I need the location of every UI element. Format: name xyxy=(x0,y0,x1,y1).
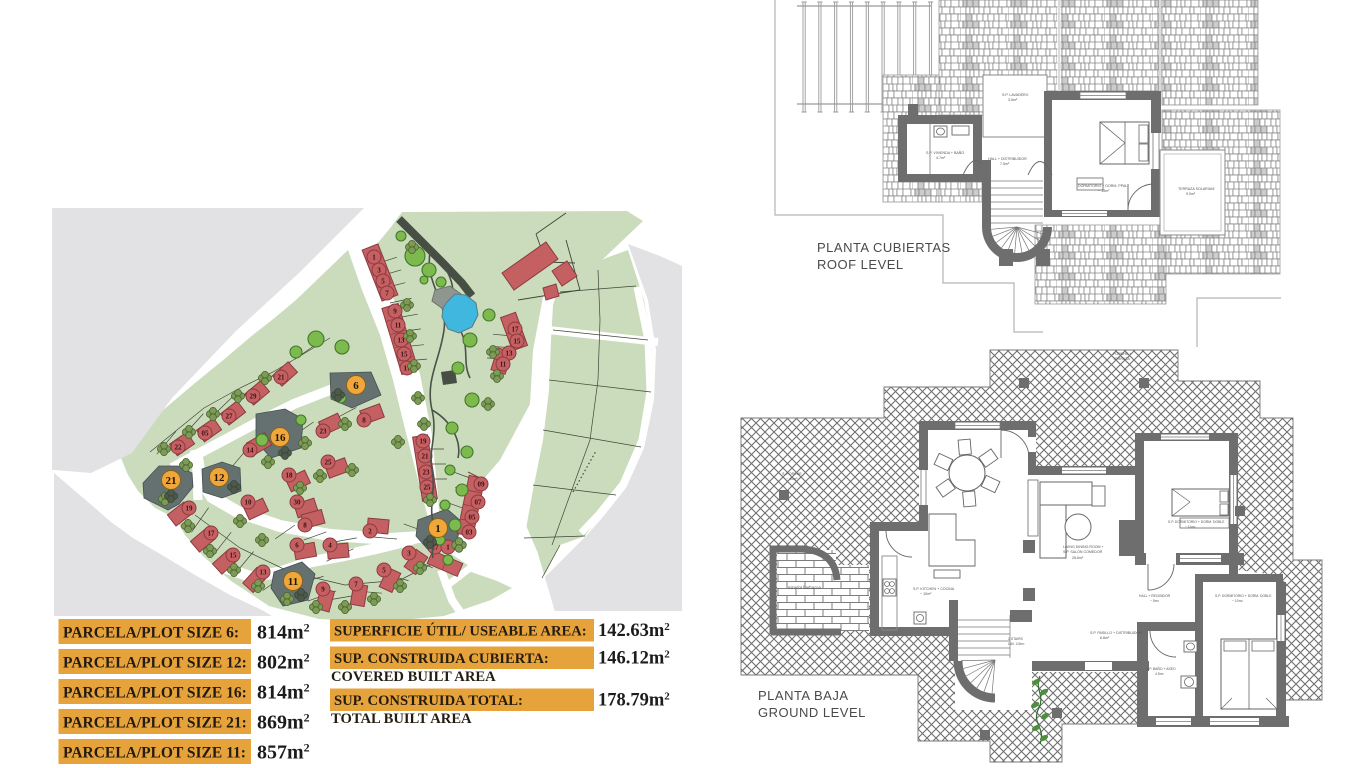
svg-text:5: 5 xyxy=(381,277,385,285)
svg-text:PLANTA BAJA: PLANTA BAJA xyxy=(758,688,849,703)
svg-text:814m2: 814m2 xyxy=(257,621,310,644)
svg-text:LIVING DINING ROOM +: LIVING DINING ROOM + xyxy=(1063,545,1104,549)
svg-text:COVERED BUILT AREA: COVERED BUILT AREA xyxy=(331,669,496,685)
svg-text:4.7m²: 4.7m² xyxy=(936,156,946,160)
svg-text:814m2: 814m2 xyxy=(257,681,310,704)
svg-text:11: 11 xyxy=(288,576,298,588)
svg-text:857m2: 857m2 xyxy=(257,741,310,764)
svg-text:05: 05 xyxy=(469,514,477,522)
svg-text:S.P. DORMITORIO + DORM. DOBLE: S.P. DORMITORIO + DORM. DOBLE xyxy=(1168,520,1225,524)
svg-text:30: 30 xyxy=(294,498,302,506)
svg-text:03: 03 xyxy=(466,529,474,537)
svg-text:19: 19 xyxy=(420,437,428,445)
svg-text:11: 11 xyxy=(395,321,402,329)
svg-text:S.P. LAVADERO: S.P. LAVADERO xyxy=(1002,93,1029,97)
svg-text:25: 25 xyxy=(325,458,333,466)
svg-text:07: 07 xyxy=(475,498,483,506)
svg-text:21: 21 xyxy=(422,452,430,460)
svg-text:17: 17 xyxy=(208,530,216,538)
svg-text:146.12m2: 146.12m2 xyxy=(598,649,670,669)
svg-text:PORCHE +: PORCHE + xyxy=(1113,352,1131,356)
svg-text:15: 15 xyxy=(230,552,238,560)
svg-text:S.P. KITCHEN + COCINA: S.P. KITCHEN + COCINA xyxy=(913,587,955,591)
svg-text:TOTAL BUILT AREA: TOTAL BUILT AREA xyxy=(331,711,472,727)
svg-text:~ 15m²: ~ 15m² xyxy=(1098,189,1110,193)
svg-text:178.79m2: 178.79m2 xyxy=(598,691,670,711)
svg-text:3: 3 xyxy=(407,550,411,558)
svg-text:09: 09 xyxy=(478,480,486,488)
svg-text:S. PORCHE: S. PORCHE xyxy=(782,472,802,476)
svg-text:mirador barbacoa: mirador barbacoa xyxy=(788,585,821,590)
svg-text:S.P. BAÑO + ASEO: S.P. BAÑO + ASEO xyxy=(1146,666,1176,671)
svg-text:S.P. VIVIENDA + BAÑO: S.P. VIVIENDA + BAÑO xyxy=(926,150,964,155)
svg-text:4: 4 xyxy=(328,542,332,550)
svg-text:9: 9 xyxy=(393,307,397,315)
svg-text:S.P. PASILLO + DISTRIBUIDOR: S.P. PASILLO + DISTRIBUIDOR xyxy=(1090,631,1142,635)
svg-text:DORMITORIO + DORM. PPAL: DORMITORIO + DORM. PPAL xyxy=(1078,184,1127,188)
svg-text:PARCELA/PLOT SIZE 16:: PARCELA/PLOT SIZE 16: xyxy=(63,685,247,702)
svg-text:PARCELA/PLOT SIZE 12:: PARCELA/PLOT SIZE 12: xyxy=(63,655,247,672)
svg-text:14: 14 xyxy=(247,446,255,454)
svg-text:23: 23 xyxy=(423,468,431,476)
svg-text:21: 21 xyxy=(278,373,286,381)
svg-text:PARCELA/PLOT SIZE 21:: PARCELA/PLOT SIZE 21: xyxy=(63,715,247,732)
svg-text:5: 5 xyxy=(382,567,386,575)
svg-text:22: 22 xyxy=(175,443,183,451)
svg-text:PLANTA CUBIERTAS: PLANTA CUBIERTAS xyxy=(817,240,951,255)
svg-text:TERRAZA SOLARIUM: TERRAZA SOLARIUM xyxy=(1178,187,1214,191)
svg-text:3.5m²: 3.5m² xyxy=(1008,98,1018,102)
svg-text:16: 16 xyxy=(275,432,287,444)
svg-text:15: 15 xyxy=(401,350,409,358)
svg-text:05: 05 xyxy=(202,429,210,437)
svg-text:8: 8 xyxy=(362,416,366,424)
svg-text:25: 25 xyxy=(424,483,432,491)
svg-text:1.STAIRS: 1.STAIRS xyxy=(1008,637,1024,641)
svg-text:PARCELA/PLOT SIZE 11:: PARCELA/PLOT SIZE 11: xyxy=(63,745,246,762)
svg-text:15: 15 xyxy=(514,337,522,345)
svg-text:S.P. SALON COMEDOR: S.P. SALON COMEDOR xyxy=(1063,550,1103,554)
svg-text:SUP. CONSTRUIDA CUBIERTA:: SUP. CONSTRUIDA CUBIERTA: xyxy=(334,651,549,667)
svg-text:7.5m²: 7.5m² xyxy=(1000,162,1010,166)
svg-text:17: 17 xyxy=(512,325,520,333)
svg-text:7: 7 xyxy=(354,581,358,589)
svg-text:TERRAZA: TERRAZA xyxy=(1113,357,1130,361)
svg-text:19: 19 xyxy=(186,504,194,512)
svg-text:28.6m²: 28.6m² xyxy=(1072,556,1084,560)
svg-text:S.P. DORMITORIO + DORM. DOBLE: S.P. DORMITORIO + DORM. DOBLE xyxy=(1215,594,1272,598)
svg-text:LAV. 4.5m²: LAV. 4.5m² xyxy=(1008,642,1025,646)
svg-text:2: 2 xyxy=(368,528,372,536)
svg-text:6.8m²: 6.8m² xyxy=(1100,636,1110,640)
svg-text:802m2: 802m2 xyxy=(257,651,310,674)
svg-text:29: 29 xyxy=(250,392,258,400)
svg-text:~ 11m²: ~ 11m² xyxy=(1185,525,1196,529)
svg-text:~ 10m²: ~ 10m² xyxy=(920,592,932,596)
svg-text:7: 7 xyxy=(385,289,389,297)
svg-text:6: 6 xyxy=(295,542,299,550)
svg-text:8: 8 xyxy=(303,522,307,530)
svg-text:142.63m2: 142.63m2 xyxy=(598,621,670,641)
svg-text:~ 5m²: ~ 5m² xyxy=(1150,599,1160,603)
svg-text:21: 21 xyxy=(166,475,177,487)
svg-text:HALL + RECIBIDOR: HALL + RECIBIDOR xyxy=(1139,594,1171,598)
svg-text:13: 13 xyxy=(260,569,268,577)
svg-text:1: 1 xyxy=(435,523,441,535)
svg-text:ROOF LEVEL: ROOF LEVEL xyxy=(817,257,904,272)
svg-text:~ 40m²: ~ 40m² xyxy=(786,477,798,481)
svg-text:3: 3 xyxy=(377,266,381,274)
svg-text:HALL + DISTRIBUIDOR: HALL + DISTRIBUIDOR xyxy=(988,157,1027,161)
svg-text:10: 10 xyxy=(245,498,253,506)
svg-text:11: 11 xyxy=(500,360,507,368)
svg-text:9: 9 xyxy=(321,586,325,594)
svg-text:~ 10m²: ~ 10m² xyxy=(1232,599,1244,603)
svg-text:1: 1 xyxy=(372,253,376,261)
svg-text:6: 6 xyxy=(353,380,359,392)
svg-text:12: 12 xyxy=(214,472,226,484)
svg-text:PARCELA/PLOT SIZE 6:: PARCELA/PLOT SIZE 6: xyxy=(63,625,239,642)
svg-text:9.0m²: 9.0m² xyxy=(1186,192,1196,196)
svg-text:27: 27 xyxy=(226,412,234,420)
svg-text:869m2: 869m2 xyxy=(257,711,310,734)
svg-text:1: 1 xyxy=(446,544,450,552)
svg-text:SUP. CONSTRUIDA TOTAL:: SUP. CONSTRUIDA TOTAL: xyxy=(334,693,523,709)
svg-text:13: 13 xyxy=(506,349,514,357)
svg-text:4.5m²: 4.5m² xyxy=(1155,672,1165,676)
svg-text:23: 23 xyxy=(320,427,328,435)
svg-text:SUPERFICIE ÚTIL/ USEABLE AREA:: SUPERFICIE ÚTIL/ USEABLE AREA: xyxy=(334,623,587,640)
svg-text:18: 18 xyxy=(286,471,294,479)
svg-text:GROUND LEVEL: GROUND LEVEL xyxy=(758,705,866,720)
